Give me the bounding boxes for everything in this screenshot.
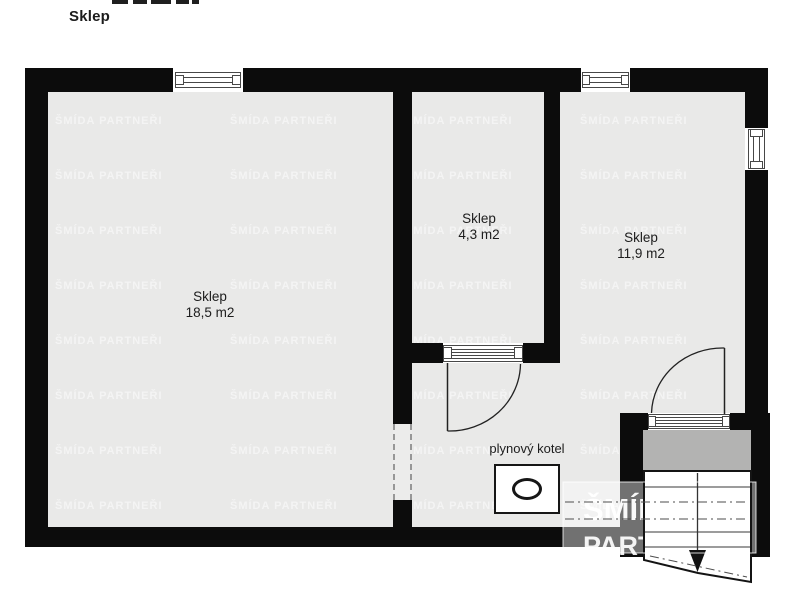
door-jamb [514,347,523,359]
watermark-tile: ŠMÍDA PARTNEŘI [230,115,338,127]
logo-remnant-icon [151,0,171,4]
logo-remnant-icon [112,0,128,4]
watermark-tile: ŠMÍDA PARTNEŘI [55,335,163,347]
room-name: Sklep [140,289,280,305]
door-jamb [722,416,730,427]
wall-small-room-bottom-right [523,343,560,363]
door-lintel [656,423,722,427]
door-lintel [656,417,722,421]
watermark-tile: ŠMÍDA PARTNEŘI [230,225,338,237]
wall-right-room-bottom-right [730,413,770,430]
door-jamb [648,416,656,427]
window-glazing [753,137,760,161]
room-area: 18,5 m2 [140,305,280,321]
wall-top [25,68,768,92]
room-area: 4,3 m2 [409,227,549,243]
window-glazing [184,77,232,83]
logo-remnant-icon [176,0,189,4]
wall-right-lower [751,430,770,557]
door-jamb [443,347,452,359]
wall-bottom [25,527,645,547]
window-jamb [175,75,184,85]
watermark-tile: ŠMÍDA PARTNEŘI [55,170,163,182]
floor-plan-page: Sklep ŠMÍDA PARTNEŘIŠMÍDA PARTNEŘIŠMÍDA … [0,0,800,600]
watermark-tile: ŠMÍDA PARTNEŘI [55,445,163,457]
window-glazing [589,77,622,83]
window-jamb [750,129,763,137]
wall-right-room-bottom-left [620,413,648,430]
door-lintel [452,349,514,353]
watermark-tile: ŠMÍDA PARTNEŘI [55,225,163,237]
window-jamb [750,161,763,169]
stair-down-arrow-icon [689,550,706,572]
watermark-tile: ŠMÍDA PARTNEŘI [55,115,163,127]
room-area: 11,9 m2 [571,246,711,262]
watermark-tile: ŠMÍDA PARTNEŘI [405,170,513,182]
boiler-label: plynový kotel [457,441,597,456]
page-title: Sklep [69,8,110,25]
wall-divider-left-upper [393,92,412,424]
room-label-large: Sklep 18,5 m2 [140,289,280,321]
wall-right [745,68,768,430]
watermark-tile: ŠMÍDA PARTNEŘI [580,170,688,182]
boiler-burner-icon [512,478,542,500]
wall-left [25,68,48,547]
room-name: Sklep [571,230,711,246]
watermark-tile: ŠMÍDA PARTNEŘI [580,390,688,402]
room-label-small: Sklep 4,3 m2 [409,211,549,243]
watermark-tile: ŠMÍDA PARTNEŘI [230,500,338,512]
watermark-tile: ŠMÍDA PARTNEŘI [580,115,688,127]
watermark-tile: ŠMÍDA PARTNEŘI [580,335,688,347]
wall-stairwell-left [620,430,643,557]
watermark-tile: ŠMÍDA PARTNEŘI [230,390,338,402]
window-jamb [232,75,241,85]
window-jamb [621,75,629,85]
door-frame-icon [443,345,523,362]
room-label-right: Sklep 11,9 m2 [571,230,711,262]
door-lintel [452,355,514,359]
logo-remnant-icon [133,0,147,4]
wall-divider-left-lower [393,500,412,527]
window-jamb [582,75,590,85]
landing-slab [643,430,751,471]
watermark-tile: ŠMÍDA PARTNEŘI [405,390,513,402]
watermark-tile: ŠMÍDA PARTNEŘI [230,170,338,182]
watermark-tile: ŠMÍDA PARTNEŘI [580,280,688,292]
room-name: Sklep [409,211,549,227]
watermark-tile: ŠMÍDA PARTNEŘI [55,500,163,512]
wall-small-room-bottom-left [412,343,443,363]
boiler-icon [494,464,560,514]
watermark-tile: ŠMÍDA PARTNEŘI [230,335,338,347]
watermark-tile: ŠMÍDA PARTNEŘI [405,280,513,292]
stair-break-line [650,556,747,577]
watermark-tile: ŠMÍDA PARTNEŘI [55,390,163,402]
watermark-tile: ŠMÍDA PARTNEŘI [405,115,513,127]
logo-remnant-icon [192,0,199,4]
watermark-tile: ŠMÍDA PARTNEŘI [230,445,338,457]
wall-opening-dashed [393,424,412,500]
